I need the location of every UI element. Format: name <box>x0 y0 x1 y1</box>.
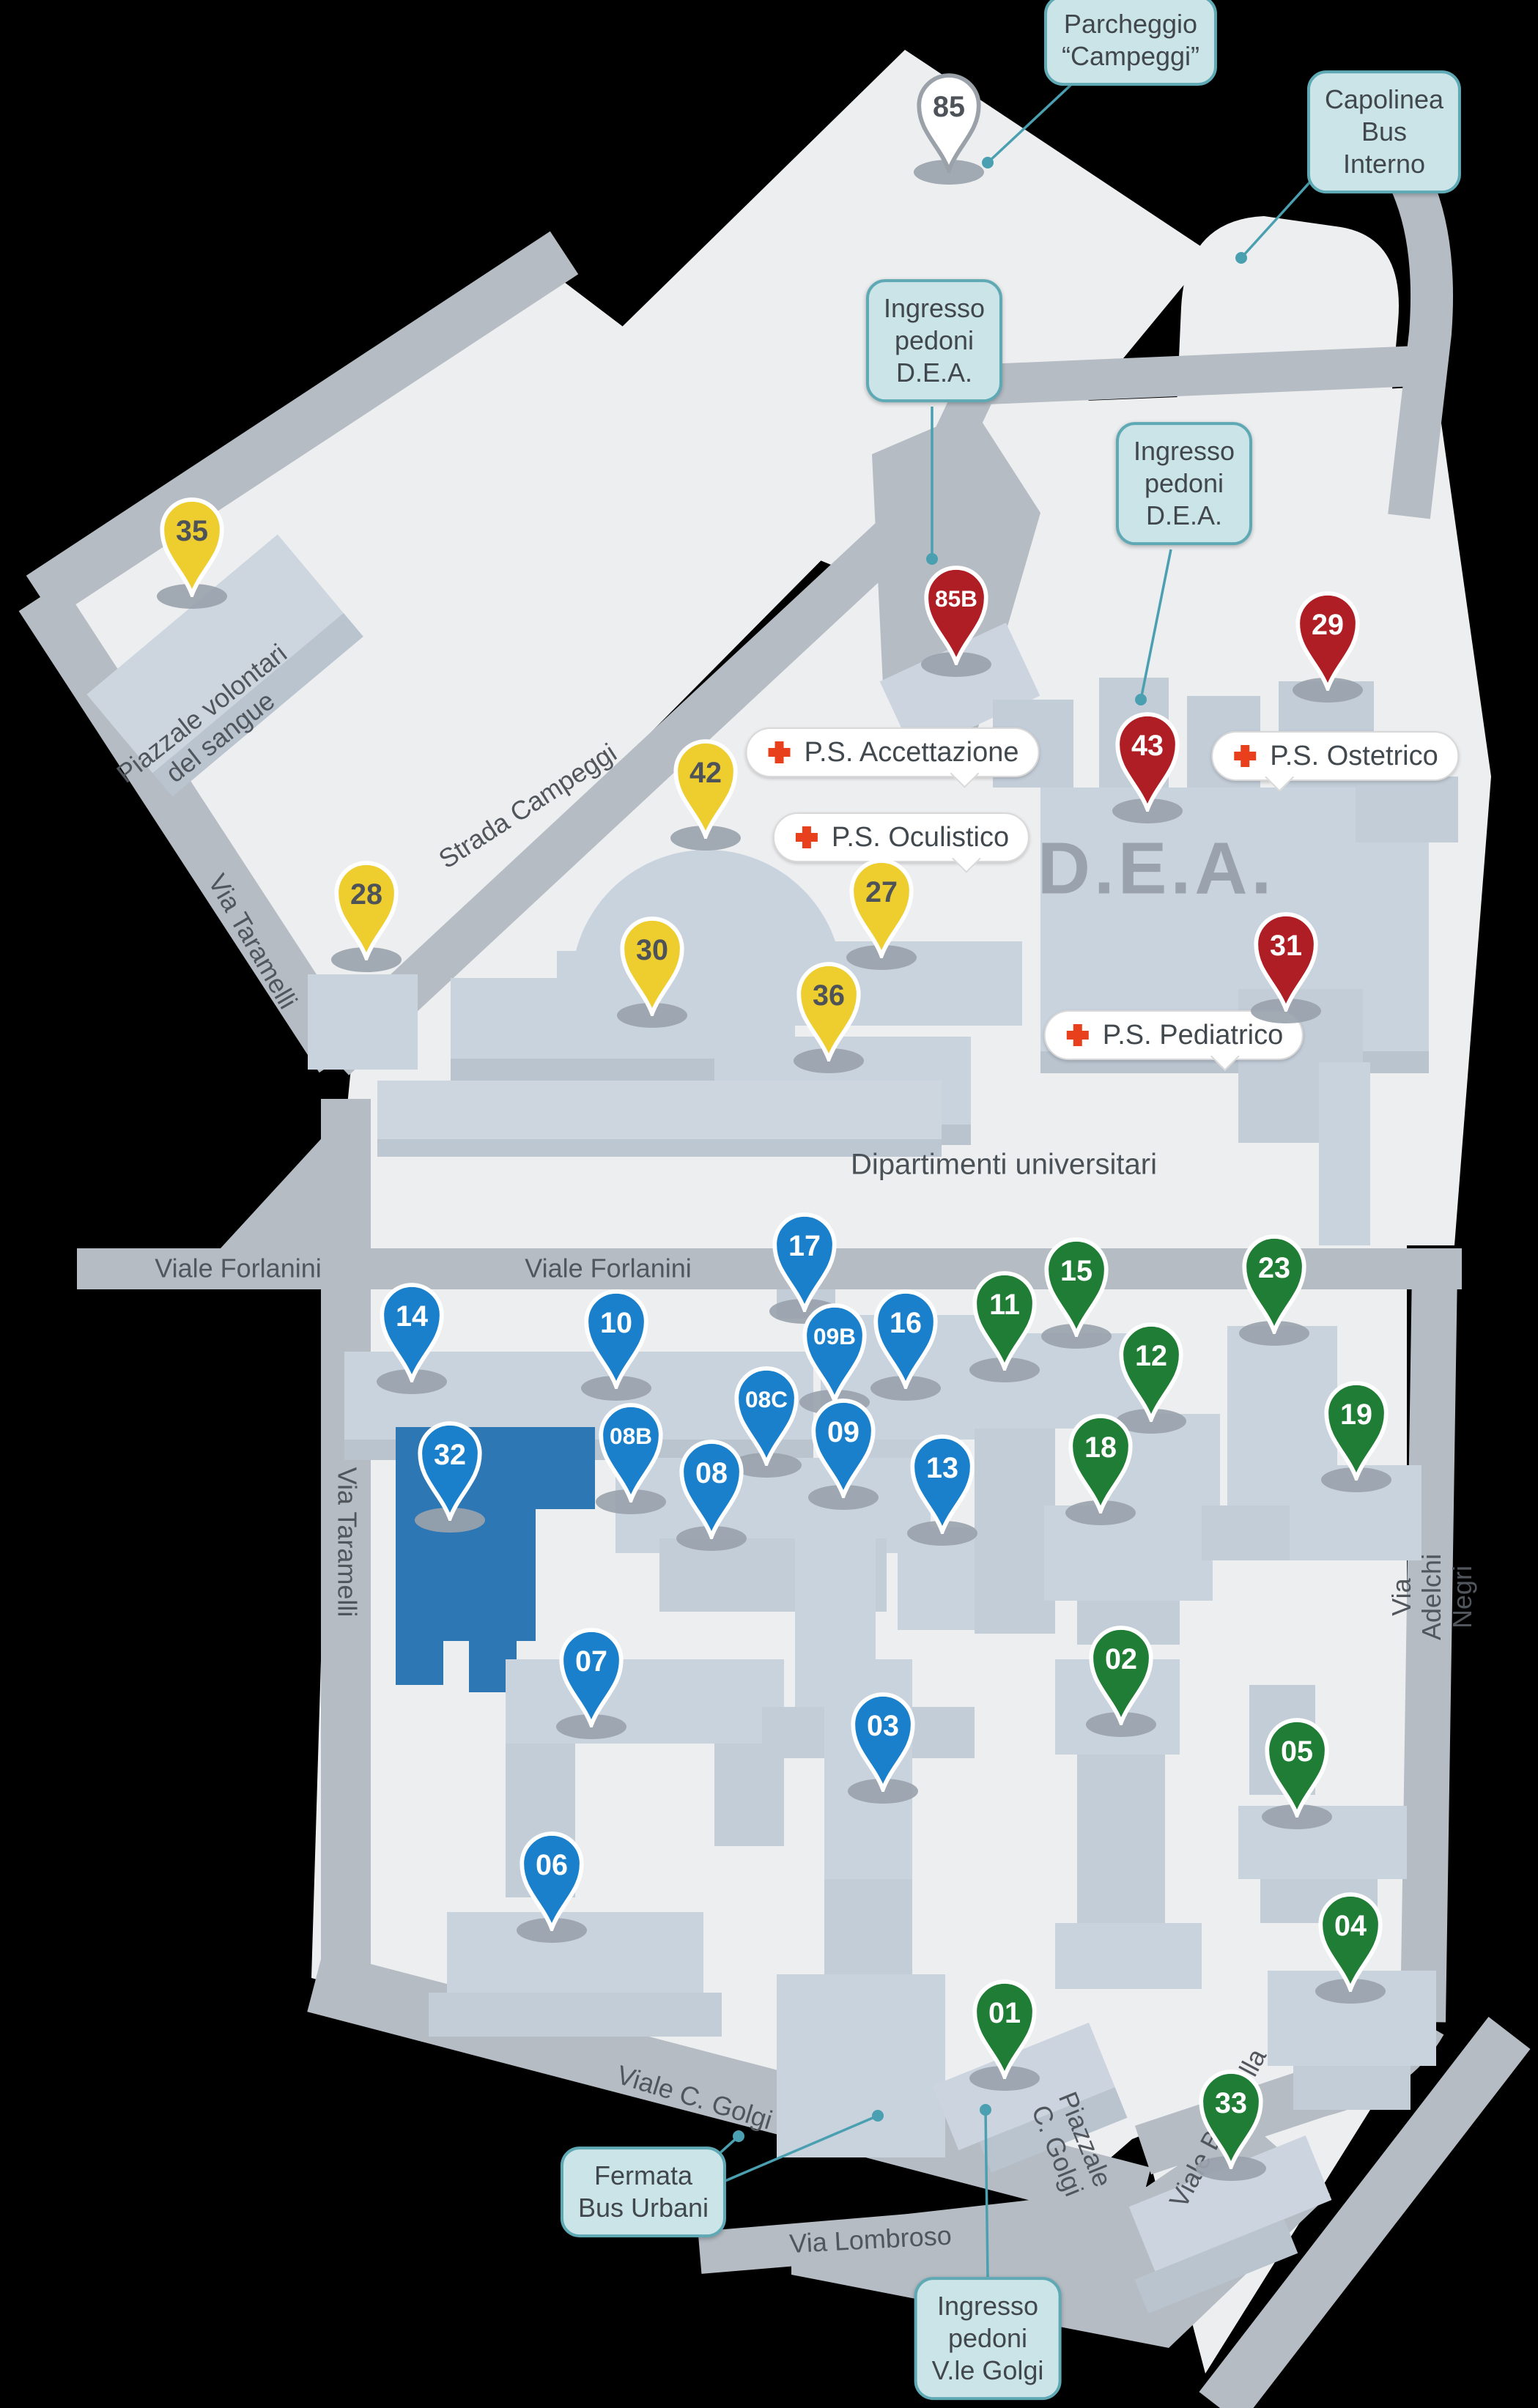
svg-text:36: 36 <box>813 979 845 1012</box>
callout-capolinea-bus-interno-line-2: Bus Interno <box>1325 116 1443 180</box>
svg-text:19: 19 <box>1340 1399 1372 1431</box>
pin-icon: 31 <box>1251 910 1321 1012</box>
callout-ingresso-pedoni-vle-golgi-line-2: pedoni <box>932 2322 1044 2355</box>
pin-icon: 08 <box>676 1437 747 1539</box>
ps-oculistico-label: P.S. Oculistico <box>832 822 1009 853</box>
svg-text:30: 30 <box>636 934 668 966</box>
pin-icon: 04 <box>1315 1890 1386 1992</box>
svg-text:03: 03 <box>867 1710 899 1742</box>
callout-capolinea-bus-interno[interactable]: CapolineaBus Interno <box>1307 70 1461 193</box>
svg-text:05: 05 <box>1281 1735 1313 1768</box>
ps-accettazione-label: P.S. Accettazione <box>805 737 1019 768</box>
callout-capolinea-bus-interno-line-1: Capolinea <box>1325 84 1443 116</box>
svg-text:08: 08 <box>695 1457 728 1489</box>
svg-text:08C: 08C <box>745 1386 788 1412</box>
svg-text:29: 29 <box>1312 609 1344 641</box>
callout-ingresso-pedoni-dea-nord-line-3: D.E.A. <box>884 357 985 389</box>
svg-text:42: 42 <box>689 757 722 789</box>
callout-parcheggio-campeggi-line-1: Parcheggio <box>1062 8 1199 40</box>
callout-ingresso-pedoni-dea-nord-line-2: pedoni <box>884 325 985 357</box>
svg-text:23: 23 <box>1258 1252 1290 1284</box>
svg-text:32: 32 <box>434 1439 466 1471</box>
svg-text:09B: 09B <box>813 1323 856 1349</box>
svg-text:33: 33 <box>1215 2087 1247 2119</box>
first-aid-cross-icon <box>794 824 820 851</box>
pin-icon: 17 <box>769 1210 840 1312</box>
first-aid-cross-icon <box>766 739 793 766</box>
pin-icon: 85 <box>914 71 984 173</box>
pin-icon: 03 <box>848 1690 918 1792</box>
pin-icon: 27 <box>846 856 917 958</box>
svg-text:02: 02 <box>1105 1643 1137 1675</box>
departments-area-label: Dipartimenti universitari <box>851 1149 1157 1182</box>
pin-icon: 43 <box>1112 710 1183 812</box>
pin-icon: 02 <box>1086 1623 1156 1725</box>
svg-text:14: 14 <box>396 1300 428 1333</box>
pin-icon: 29 <box>1293 589 1363 691</box>
ps-ostetrico-badge[interactable]: P.S. Ostetrico <box>1211 731 1459 781</box>
pin-icon: 15 <box>1041 1235 1112 1337</box>
svg-text:11: 11 <box>989 1289 1020 1321</box>
ps-oculistico-badge[interactable]: P.S. Oculistico <box>773 812 1029 862</box>
ps-pediatrico-label: P.S. Pediatrico <box>1103 1020 1283 1051</box>
svg-text:28: 28 <box>350 878 382 911</box>
callout-parcheggio-campeggi-line-2: “Campeggi” <box>1062 40 1199 73</box>
svg-text:18: 18 <box>1084 1431 1117 1464</box>
ps-ostetrico-label: P.S. Ostetrico <box>1270 741 1438 772</box>
svg-text:07: 07 <box>575 1645 607 1678</box>
callout-ingresso-pedoni-dea-est-line-1: Ingresso <box>1134 435 1235 467</box>
map-base-art <box>0 0 1538 2408</box>
callout-ingresso-pedoni-vle-golgi[interactable]: IngressopedoniV.le Golgi <box>914 2277 1062 2400</box>
callout-ingresso-pedoni-dea-est-line-3: D.E.A. <box>1134 500 1235 532</box>
svg-text:43: 43 <box>1131 730 1164 762</box>
pin-icon: 42 <box>670 737 741 839</box>
callout-fermata-bus-urbani-line-2: Bus Urbani <box>578 2192 709 2224</box>
callout-ingresso-pedoni-dea-nord-line-1: Ingresso <box>884 292 985 325</box>
callout-ingresso-pedoni-dea-nord[interactable]: IngressopedoniD.E.A. <box>866 279 1002 402</box>
pin-icon: 10 <box>581 1287 651 1389</box>
road-label-viale-forlanini-centro: Viale Forlanini <box>525 1253 691 1283</box>
callout-ingresso-pedoni-vle-golgi-line-3: V.le Golgi <box>932 2355 1044 2387</box>
svg-text:13: 13 <box>926 1452 958 1484</box>
first-aid-cross-icon <box>1232 743 1258 769</box>
svg-text:27: 27 <box>865 876 898 908</box>
pin-icon: 12 <box>1116 1320 1186 1422</box>
svg-text:10: 10 <box>600 1307 632 1339</box>
pin-icon: 36 <box>794 960 864 1062</box>
pin-icon: 11 <box>969 1269 1040 1371</box>
svg-text:31: 31 <box>1270 930 1302 962</box>
svg-text:12: 12 <box>1135 1340 1167 1372</box>
svg-text:16: 16 <box>890 1307 922 1339</box>
pin-icon: 85B <box>921 563 991 665</box>
pin-icon: 18 <box>1065 1412 1136 1514</box>
road-label-via-adelchi-negri: Via Adelchi Negri <box>1386 1544 1477 1651</box>
callout-fermata-bus-urbani-line-1: Fermata <box>578 2160 709 2192</box>
pin-icon: 05 <box>1262 1716 1332 1818</box>
svg-text:01: 01 <box>988 1997 1021 2029</box>
pin-icon: 01 <box>969 1977 1040 2079</box>
pin-icon: 30 <box>617 914 687 1016</box>
svg-text:04: 04 <box>1334 1910 1367 1942</box>
svg-text:09: 09 <box>827 1416 859 1448</box>
svg-text:08B: 08B <box>610 1423 652 1449</box>
pin-icon: 35 <box>157 495 227 597</box>
pin-icon: 07 <box>556 1626 626 1727</box>
dea-area-label: D.E.A. <box>1038 827 1275 911</box>
svg-text:35: 35 <box>176 515 208 547</box>
callout-ingresso-pedoni-dea-est[interactable]: IngressopedoniD.E.A. <box>1116 422 1252 545</box>
pin-icon: 19 <box>1321 1379 1391 1481</box>
pin-icon: 23 <box>1239 1232 1309 1334</box>
ps-accettazione-badge[interactable]: P.S. Accettazione <box>746 727 1040 777</box>
svg-text:85: 85 <box>933 91 965 123</box>
pin-icon: 09B <box>799 1301 870 1403</box>
hospital-campus-map: D.E.A. Dipartimenti universitari Piazzal… <box>0 0 1538 2408</box>
svg-text:15: 15 <box>1060 1255 1093 1287</box>
pin-icon: 14 <box>377 1281 447 1382</box>
pin-icon: 33 <box>1196 2067 1266 2169</box>
pin-icon: 06 <box>517 1829 587 1931</box>
pin-icon: 09 <box>808 1396 879 1498</box>
svg-text:06: 06 <box>536 1849 568 1881</box>
first-aid-cross-icon <box>1065 1022 1091 1048</box>
callout-parcheggio-campeggi[interactable]: Parcheggio“Campeggi” <box>1044 0 1217 86</box>
road-label-viale-forlanini-ovest: Viale Forlanini <box>155 1253 321 1283</box>
pin-icon: 28 <box>331 859 402 960</box>
svg-text:85B: 85B <box>935 585 977 612</box>
pin-icon: 08B <box>596 1401 666 1503</box>
pin-icon: 13 <box>907 1432 977 1534</box>
pin-icon: 32 <box>415 1419 485 1521</box>
callout-ingresso-pedoni-vle-golgi-line-1: Ingresso <box>932 2290 1044 2322</box>
pin-icon: 16 <box>870 1287 941 1389</box>
callout-ingresso-pedoni-dea-est-line-2: pedoni <box>1134 467 1235 500</box>
svg-text:17: 17 <box>788 1230 821 1262</box>
callout-fermata-bus-urbani[interactable]: FermataBus Urbani <box>561 2146 726 2237</box>
road-label-via-taramelli-sud: Via Taramelli <box>332 1467 362 1618</box>
